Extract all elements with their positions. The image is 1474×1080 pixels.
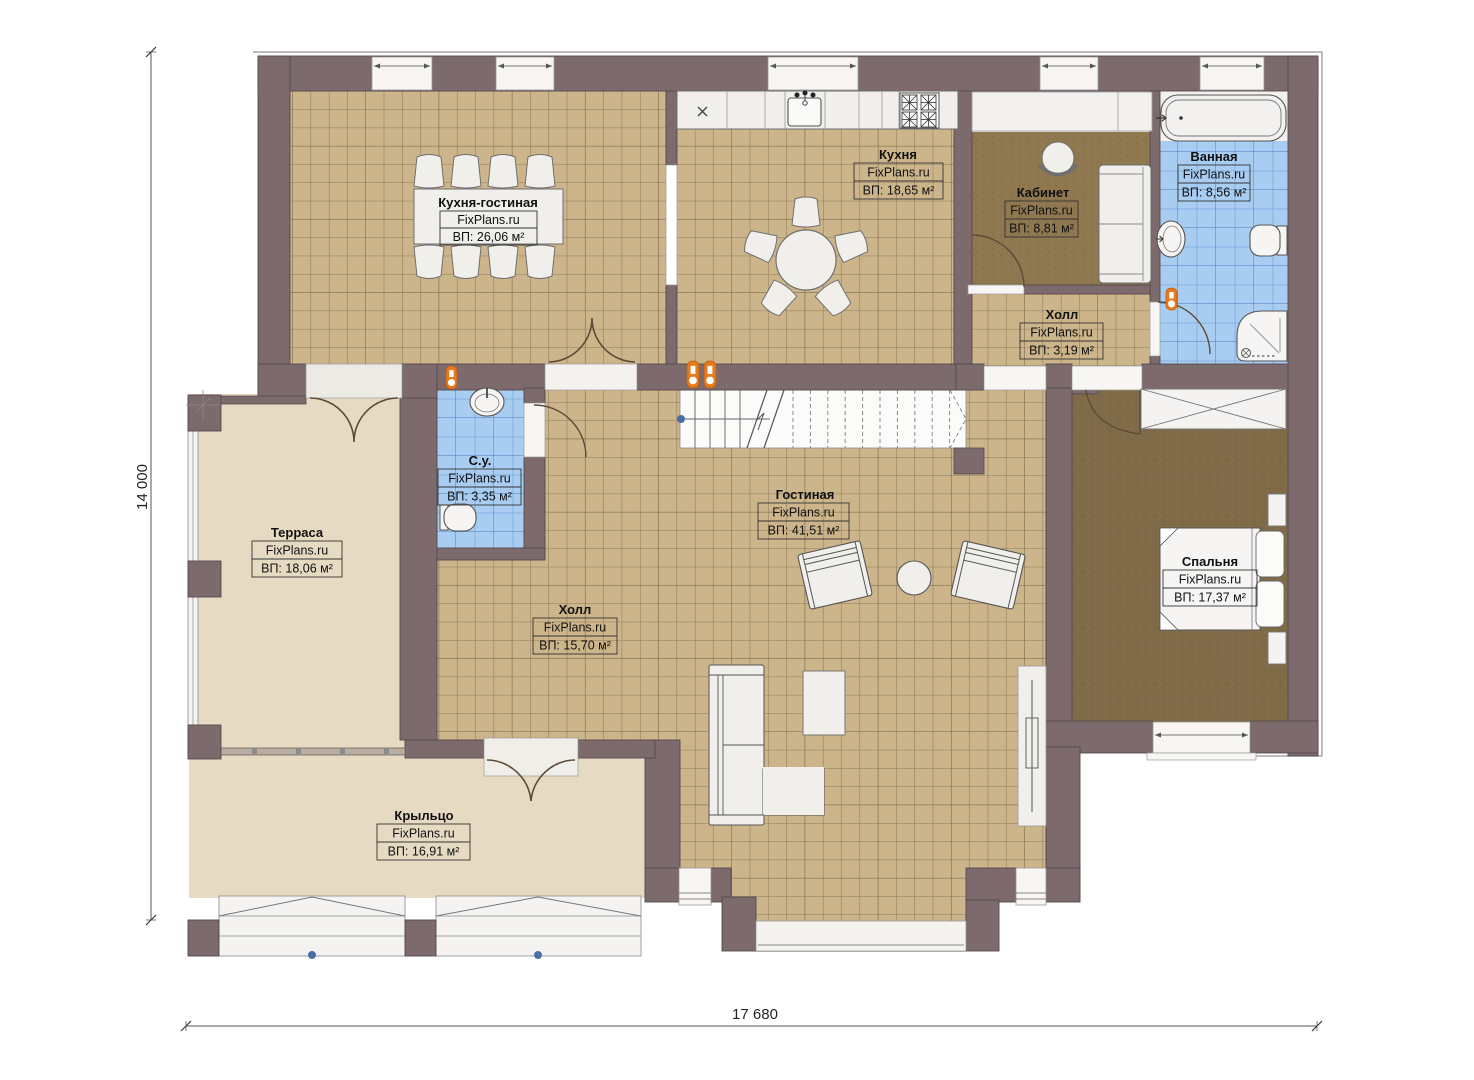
- svg-text:Кухня-гостиная: Кухня-гостиная: [438, 195, 538, 210]
- svg-text:ВП: 8,81 м²: ВП: 8,81 м²: [1009, 222, 1074, 236]
- svg-text:FixPlans.ru: FixPlans.ru: [448, 472, 511, 486]
- svg-text:Гостиная: Гостиная: [776, 487, 835, 502]
- svg-text:Спальня: Спальня: [1182, 554, 1238, 569]
- svg-text:FixPlans.ru: FixPlans.ru: [772, 506, 835, 520]
- svg-text:ВП: 3,35 м²: ВП: 3,35 м²: [447, 490, 512, 504]
- svg-text:FixPlans.ru: FixPlans.ru: [867, 166, 930, 180]
- svg-text:Терраса: Терраса: [271, 525, 324, 540]
- svg-text:С.у.: С.у.: [469, 453, 492, 468]
- svg-text:FixPlans.ru: FixPlans.ru: [1179, 573, 1242, 587]
- svg-text:Ванная: Ванная: [1190, 149, 1237, 164]
- svg-text:Кабинет: Кабинет: [1017, 185, 1070, 200]
- svg-text:Холл: Холл: [1046, 307, 1079, 322]
- svg-text:ВП: 26,06 м²: ВП: 26,06 м²: [453, 230, 525, 244]
- svg-text:17 680: 17 680: [732, 1006, 778, 1023]
- svg-text:ВП: 18,65 м²: ВП: 18,65 м²: [863, 184, 935, 198]
- svg-text:ВП: 18,06 м²: ВП: 18,06 м²: [261, 562, 333, 576]
- svg-text:ВП: 17,37 м²: ВП: 17,37 м²: [1174, 591, 1246, 605]
- svg-text:FixPlans.ru: FixPlans.ru: [266, 544, 329, 558]
- svg-text:Холл: Холл: [559, 602, 592, 617]
- svg-text:FixPlans.ru: FixPlans.ru: [1010, 204, 1073, 218]
- svg-text:FixPlans.ru: FixPlans.ru: [1030, 326, 1093, 340]
- svg-text:Крыльцо: Крыльцо: [394, 808, 453, 823]
- svg-text:FixPlans.ru: FixPlans.ru: [544, 621, 607, 635]
- svg-text:14 000: 14 000: [134, 464, 151, 510]
- svg-text:FixPlans.ru: FixPlans.ru: [1183, 168, 1246, 182]
- svg-text:FixPlans.ru: FixPlans.ru: [457, 213, 520, 227]
- svg-text:FixPlans.ru: FixPlans.ru: [392, 827, 455, 841]
- svg-text:ВП: 16,91 м²: ВП: 16,91 м²: [388, 845, 460, 859]
- svg-text:ВП: 8,56 м²: ВП: 8,56 м²: [1182, 186, 1247, 200]
- svg-text:ВП: 15,70 м²: ВП: 15,70 м²: [539, 639, 611, 653]
- svg-text:ВП: 41,51 м²: ВП: 41,51 м²: [768, 524, 840, 538]
- svg-text:ВП: 3,19 м²: ВП: 3,19 м²: [1029, 344, 1094, 358]
- svg-text:Кухня: Кухня: [879, 147, 917, 162]
